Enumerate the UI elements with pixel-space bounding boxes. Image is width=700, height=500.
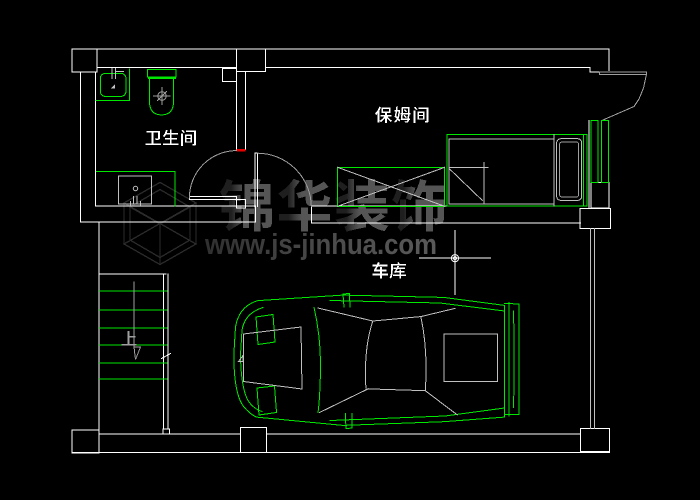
svg-text:www.js-jinhua.com: www.js-jinhua.com	[204, 229, 437, 261]
